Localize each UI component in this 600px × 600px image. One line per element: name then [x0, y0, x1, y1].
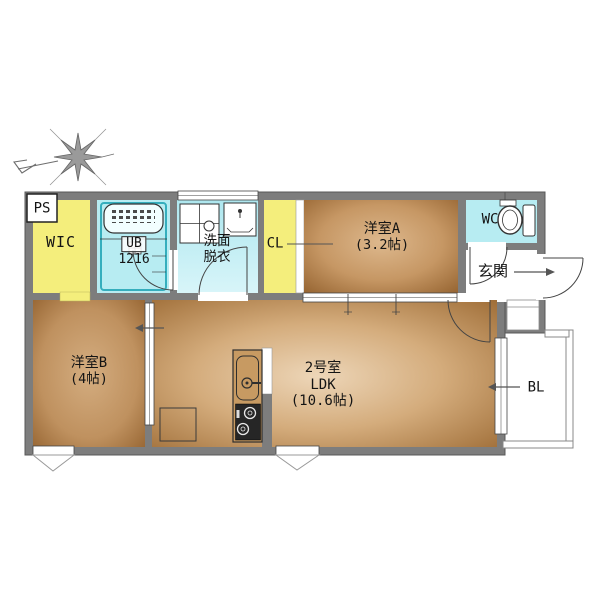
closet-sliding-door — [296, 200, 304, 293]
room-a-label: 洋室A (3.2帖) — [355, 221, 409, 253]
room-b-size: (4帖) — [70, 371, 108, 387]
bath-label-size: 1216 — [118, 252, 149, 267]
front-door-opening — [536, 254, 546, 300]
window-ldk — [276, 446, 319, 470]
floor-plan-drawing — [0, 0, 600, 600]
front-door-arc — [543, 258, 583, 298]
kitchen-panel — [262, 348, 272, 394]
wic-label: WIC — [46, 234, 76, 252]
shoe-cabinet — [507, 300, 539, 330]
kitchen-counter — [233, 350, 262, 442]
washroom-label: 洗面 脱衣 — [204, 234, 231, 266]
washroom-label-line2: 脱衣 — [204, 250, 231, 266]
kitchen-wall-stub — [262, 394, 272, 447]
wc-door-opening — [468, 242, 506, 251]
room-a-name: 洋室A — [355, 221, 409, 238]
vanity-sink-icon — [224, 203, 256, 236]
room-a-size: (3.2帖) — [355, 237, 409, 253]
hall-door-opening — [452, 293, 490, 302]
sliding-door-room-b — [145, 303, 154, 425]
bath-label: UB 1216 — [118, 236, 149, 268]
ldk-room-number: 2号室 — [291, 360, 356, 377]
wic-opening — [60, 292, 90, 301]
balcony-label: BL — [528, 380, 545, 397]
room-b-name: 洋室B — [70, 355, 108, 372]
bath-label-ub: UB — [121, 236, 147, 252]
washroom-label-line1: 洗面 — [204, 234, 231, 250]
closet-label: CL — [267, 236, 284, 253]
floor-plan: PS WIC UB 1216 洗面 脱衣 CL 洋室A (3.2帖) WC 玄関… — [0, 0, 600, 600]
washroom-door-opening — [198, 292, 248, 301]
ldk-label: 2号室 LDK (10.6帖) — [291, 360, 356, 410]
ldk-type: LDK — [291, 377, 356, 394]
stove-icon — [236, 404, 261, 440]
sliding-window-balcony — [495, 338, 507, 434]
room-b-label: 洋室B (4帖) — [70, 355, 108, 387]
compass-icon — [14, 129, 114, 185]
wc-label: WC — [482, 212, 499, 229]
window-room-b — [33, 446, 74, 471]
ps-label: PS — [34, 201, 51, 218]
entrance-label: 玄関 — [478, 263, 508, 281]
window-top-washroom — [178, 191, 258, 200]
ldk-size: (10.6帖) — [291, 393, 356, 410]
